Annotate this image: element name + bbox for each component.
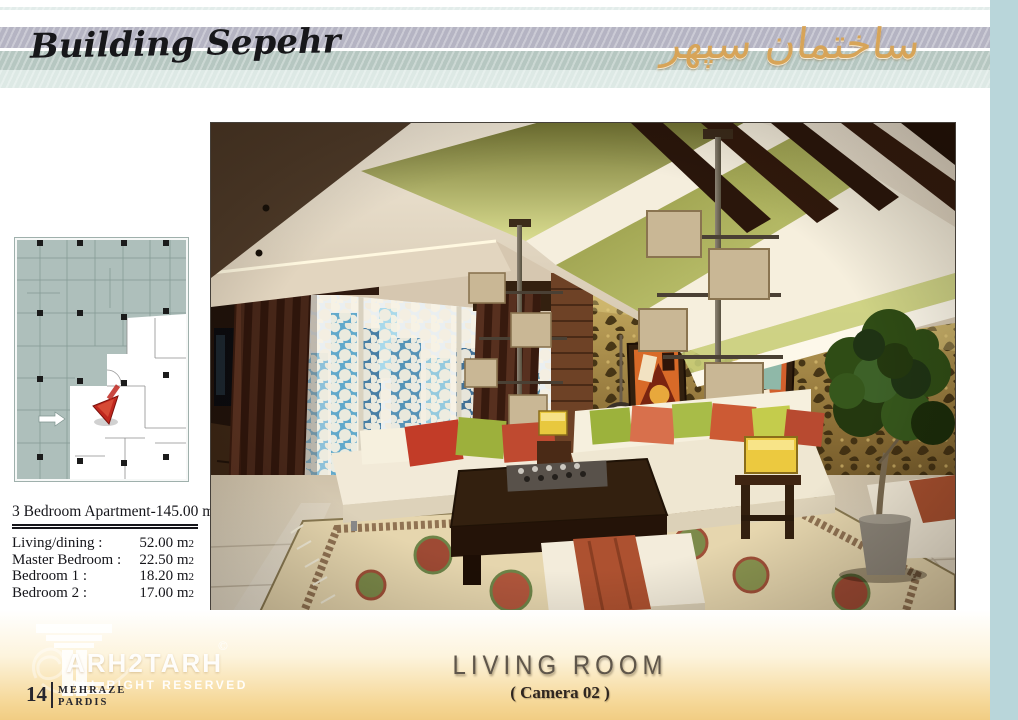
logo-wordmark: ARH2TARH bbox=[66, 648, 223, 679]
area-label: Living/dining : bbox=[12, 536, 102, 553]
area-value: 52.00 m2 bbox=[139, 536, 194, 553]
page-number-block: 14 MEHRAZE PARDIS bbox=[26, 682, 126, 708]
area-row: Bedroom 2 : 17.00 m2 bbox=[12, 586, 194, 603]
area-row: Master Bedroom : 22.50 m2 bbox=[12, 553, 194, 570]
right-edge-bar bbox=[990, 0, 1018, 720]
living-room-render bbox=[210, 122, 956, 615]
area-value: 18.20 m2 bbox=[139, 569, 194, 586]
area-label: Bedroom 1 : bbox=[12, 569, 87, 586]
area-row: Living/dining : 52.00 m2 bbox=[12, 536, 194, 553]
brochure-page: Building Sepehr ساختمان سپهر bbox=[0, 0, 1018, 720]
building-title-farsi: ساختمان سپهر bbox=[656, 2, 925, 86]
apartment-title: 3 Bedroom Apartment-145.00 m2 bbox=[12, 503, 200, 521]
copyright-icon: © bbox=[218, 638, 228, 654]
brand-name: MEHRAZE PARDIS bbox=[58, 682, 126, 708]
floor-plan-drawing bbox=[15, 238, 188, 481]
floor-plan-thumbnail bbox=[15, 238, 188, 481]
image-caption: LIVING ROOM ( Camera 02 ) bbox=[330, 610, 790, 703]
area-value: 17.00 m2 bbox=[139, 586, 194, 603]
divider bbox=[51, 682, 53, 708]
area-label: Bedroom 2 : bbox=[12, 586, 87, 603]
render-vignette bbox=[211, 123, 955, 614]
area-row: Bedroom 1 : 18.20 m2 bbox=[12, 569, 194, 586]
footer-band: ARH2TARH © ALL RIGHT RESERVED 14 MEHRAZE… bbox=[0, 610, 990, 720]
building-title: Building Sepehr bbox=[30, 21, 341, 66]
area-label: Master Bedroom : bbox=[12, 553, 121, 570]
area-value: 22.50 m2 bbox=[139, 553, 194, 570]
caption-subtitle: ( Camera 02 ) bbox=[330, 683, 790, 703]
apartment-info: 3 Bedroom Apartment-145.00 m2 Living/din… bbox=[12, 503, 200, 602]
double-rule bbox=[12, 524, 198, 529]
caption-title: LIVING ROOM bbox=[330, 650, 790, 681]
header-band: Building Sepehr ساختمان سپهر bbox=[0, 0, 990, 100]
living-room-scene bbox=[211, 123, 955, 614]
page-number: 14 bbox=[26, 682, 47, 706]
